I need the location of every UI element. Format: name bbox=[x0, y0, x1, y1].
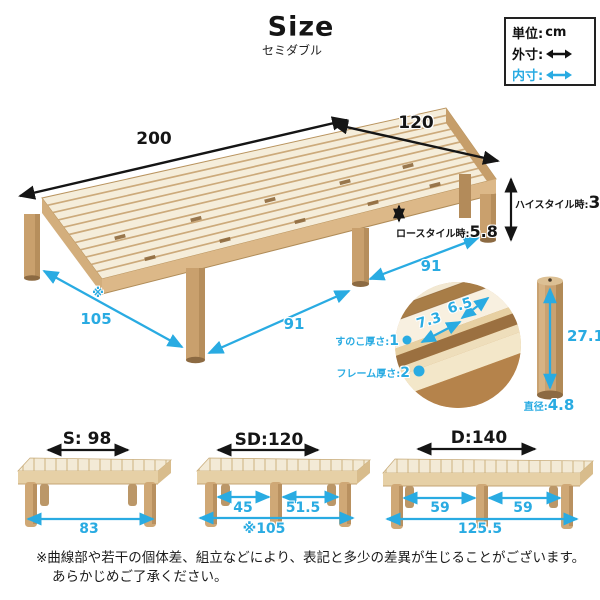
high-style-value: 33 bbox=[589, 193, 600, 213]
variant-sd-gap-right-value: 51.5 bbox=[286, 500, 321, 516]
unit-label: 単位: bbox=[512, 23, 543, 42]
outer-length-value: 200 bbox=[136, 129, 172, 149]
inner-dim-arrow-icon bbox=[544, 69, 574, 81]
front-gap-left-value: 91 bbox=[284, 315, 305, 333]
disclaimer-note: ※曲線部や若干の個体差、組立などにより、表記と多少の差異が生じることがございます… bbox=[36, 549, 586, 586]
frame-thickness-dot bbox=[414, 366, 425, 377]
inner-dim-row: 内寸: bbox=[512, 64, 594, 85]
unit-row: 単位: cm bbox=[512, 22, 594, 43]
variant-sd-span-value: ※105 bbox=[243, 521, 286, 537]
variant-sd-gap-left-value: 45 bbox=[233, 500, 252, 516]
note-line-1: ※曲線部や若干の個体差、組立などにより、表記と多少の差異が生じることがございます… bbox=[36, 549, 586, 568]
front-gap-right-value: 91 bbox=[421, 257, 442, 275]
variant-d-illustration bbox=[383, 449, 593, 529]
front-gap-left-arrow bbox=[209, 291, 349, 353]
note-line-2: あらかじめご了承ください。 bbox=[52, 568, 586, 587]
outer-dim-label: 外寸: bbox=[512, 44, 543, 63]
slat-thickness-dot bbox=[403, 336, 412, 345]
low-style-value: 5.8 bbox=[470, 222, 498, 241]
leg-span-width-value: 105 bbox=[80, 310, 111, 328]
page-subtitle: セミダブル bbox=[262, 42, 322, 59]
variant-d-span-value: 125.5 bbox=[458, 521, 502, 537]
variant-d-gap-left-value: 59 bbox=[430, 500, 449, 516]
outer-dim-row: 外寸: bbox=[512, 43, 594, 64]
slat-thickness: すのこ厚さ: 1 bbox=[335, 333, 399, 349]
page-title: Size bbox=[268, 12, 335, 43]
variant-s-illustration bbox=[18, 450, 171, 527]
leg-diameter-value: 4.8 bbox=[548, 396, 575, 414]
leg-diameter-label: 直径: bbox=[524, 398, 548, 413]
high-style-height: ハイスタイル時: 33 bbox=[515, 193, 600, 213]
size-diagram-page: Size セミダブル 単位: cm 外寸: 内寸: 200 120 ハイスタイル bbox=[0, 0, 600, 600]
variant-s-label: S: 98 bbox=[63, 429, 112, 449]
frame-thickness-label: フレーム厚さ: bbox=[337, 365, 401, 380]
slat-thickness-value: 1 bbox=[389, 333, 399, 349]
leg-height-value: 27.1 bbox=[567, 327, 600, 345]
leg-span-note: ※ bbox=[92, 286, 104, 300]
frame-thickness: フレーム厚さ: 2 bbox=[337, 365, 410, 381]
leg-detail-illustration bbox=[537, 277, 563, 400]
leg-diameter: 直径: 4.8 bbox=[524, 396, 575, 414]
low-style-label: ロースタイル時: bbox=[396, 225, 470, 240]
outer-dim-arrow-icon bbox=[544, 48, 574, 60]
variant-s-span-value: 83 bbox=[79, 521, 98, 537]
variant-d-label: D:140 bbox=[451, 428, 507, 448]
frame-thickness-value: 2 bbox=[400, 365, 410, 381]
unit-legend-box: 単位: cm 外寸: 内寸: bbox=[504, 17, 596, 86]
slat-thickness-label: すのこ厚さ: bbox=[335, 333, 389, 348]
variant-sd-illustration bbox=[197, 450, 370, 527]
unit-value: cm bbox=[545, 25, 566, 40]
low-style-height: ロースタイル時: 5.8 bbox=[396, 222, 498, 241]
high-style-label: ハイスタイル時: bbox=[515, 196, 589, 211]
variant-d-gap-right-value: 59 bbox=[513, 500, 532, 516]
outer-width-value: 120 bbox=[398, 113, 434, 133]
variant-sd-label: SD:120 bbox=[235, 430, 304, 450]
inner-dim-label: 内寸: bbox=[512, 65, 543, 84]
